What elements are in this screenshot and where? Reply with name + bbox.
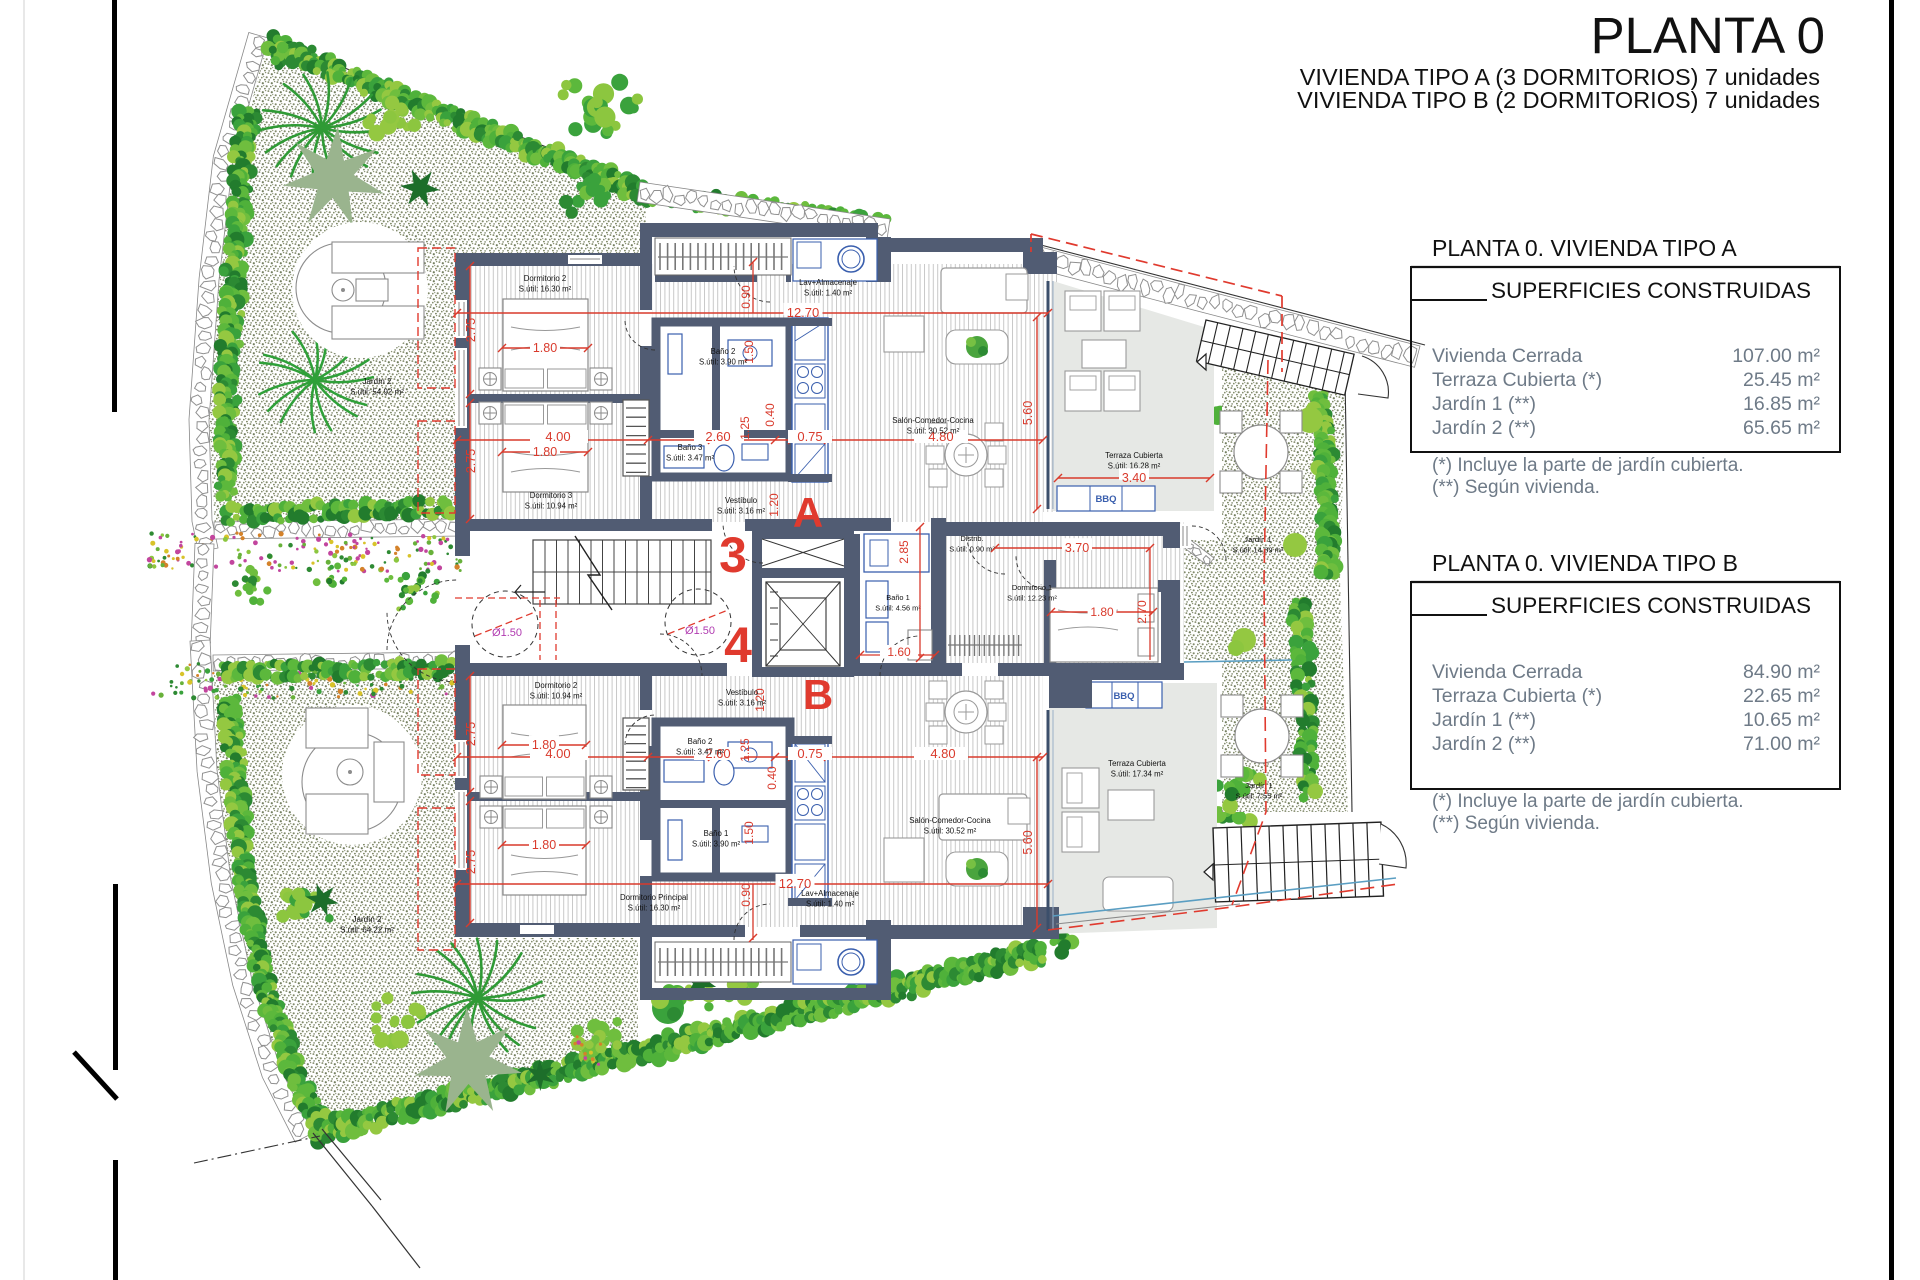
svg-text:Jardín 1 (**): Jardín 1 (**) — [1432, 393, 1536, 415]
svg-text:16.85 m²: 16.85 m² — [1743, 393, 1820, 415]
svg-text:4.00: 4.00 — [545, 429, 570, 444]
svg-text:3.70: 3.70 — [1065, 541, 1089, 555]
svg-text:Dormitorio 3: Dormitorio 3 — [530, 491, 572, 500]
svg-text:1.25: 1.25 — [738, 738, 752, 762]
svg-text:Vestíbulo: Vestíbulo — [726, 688, 759, 697]
svg-text:S.útil: 1.40 m²: S.útil: 1.40 m² — [806, 900, 855, 909]
svg-text:65.65 m²: 65.65 m² — [1743, 417, 1820, 439]
svg-text:4: 4 — [724, 617, 752, 673]
svg-text:0.40: 0.40 — [763, 403, 777, 427]
svg-text:S.útil: 3.90 m²: S.útil: 3.90 m² — [699, 358, 748, 367]
svg-text:S.útil: 7.55 m²: S.útil: 7.55 m² — [1236, 792, 1283, 801]
svg-text:1.20: 1.20 — [767, 493, 781, 517]
svg-text:1.80: 1.80 — [532, 738, 556, 752]
svg-text:Dormitorio Principal: Dormitorio Principal — [620, 893, 688, 902]
svg-text:S.útil: 64.22 m²: S.útil: 64.22 m² — [340, 926, 394, 935]
svg-text:Vestíbulo: Vestíbulo — [725, 496, 758, 505]
svg-text:Vivienda Cerrada: Vivienda Cerrada — [1432, 345, 1582, 367]
svg-text:S.útil: 10.94 m²: S.útil: 10.94 m² — [525, 502, 578, 511]
svg-text:Jardín 2: Jardín 2 — [363, 377, 392, 386]
svg-text:S.útil: 10.94 m²: S.útil: 10.94 m² — [530, 692, 583, 701]
svg-text:Salón-Comedor-Cocina: Salón-Comedor-Cocina — [909, 816, 991, 825]
svg-text:Baño 2: Baño 2 — [711, 347, 736, 356]
svg-text:1.80: 1.80 — [533, 445, 557, 459]
svg-text:1.80: 1.80 — [1090, 605, 1114, 619]
svg-text:0.40: 0.40 — [765, 766, 779, 790]
svg-text:2.75: 2.75 — [464, 449, 478, 473]
svg-text:3: 3 — [719, 527, 747, 583]
svg-text:Baño 1: Baño 1 — [886, 593, 909, 602]
svg-text:Dormitorio 2: Dormitorio 2 — [535, 681, 577, 690]
svg-text:Terraza Cubierta: Terraza Cubierta — [1105, 451, 1163, 460]
svg-text:A: A — [793, 489, 823, 536]
svg-text:(*) Incluye la parte de jardí: (*) Incluye la parte de jardín cubierta. — [1432, 791, 1744, 812]
svg-text:S.útil: 3.16 m²: S.útil: 3.16 m² — [718, 699, 767, 708]
svg-text:Baño 1: Baño 1 — [704, 829, 729, 838]
svg-text:S.útil: 30.52 m²: S.útil: 30.52 m² — [907, 427, 960, 436]
svg-text:1.25: 1.25 — [738, 416, 752, 440]
svg-text:SUPERFICIES CONSTRUIDAS: SUPERFICIES CONSTRUIDAS — [1491, 593, 1811, 618]
svg-text:Terraza Cubierta (*): Terraza Cubierta (*) — [1432, 369, 1602, 391]
svg-text:(*) Incluye la parte de jardí: (*) Incluye la parte de jardín cubierta. — [1432, 455, 1744, 476]
svg-text:1.80: 1.80 — [532, 838, 556, 852]
svg-text:10.65 m²: 10.65 m² — [1743, 709, 1820, 731]
svg-text:25.45 m²: 25.45 m² — [1743, 369, 1820, 391]
svg-text:S.útil: 17.34 m²: S.útil: 17.34 m² — [1111, 770, 1164, 779]
svg-text:Ø1.50: Ø1.50 — [492, 627, 522, 639]
svg-text:0.90: 0.90 — [739, 883, 753, 907]
svg-text:Lav+Almacenaje: Lav+Almacenaje — [801, 889, 859, 898]
svg-text:2.60: 2.60 — [705, 429, 730, 444]
svg-text:(**) Según vivienda.: (**) Según vivienda. — [1432, 477, 1600, 498]
svg-text:Jardín 2 (**): Jardín 2 (**) — [1432, 733, 1536, 755]
svg-text:S.útil: 3.90 m²: S.útil: 3.90 m² — [692, 840, 741, 849]
svg-text:12.70: 12.70 — [787, 305, 820, 320]
svg-text:S.útil: 4.56 m²: S.útil: 4.56 m² — [875, 604, 921, 613]
svg-text:2.70: 2.70 — [1135, 600, 1149, 624]
svg-text:SUPERFICIES CONSTRUIDAS: SUPERFICIES CONSTRUIDAS — [1491, 278, 1811, 303]
svg-text:1.60: 1.60 — [887, 645, 911, 659]
svg-text:Salón-Comedor-Cocina: Salón-Comedor-Cocina — [892, 416, 974, 425]
svg-text:PLANTA 0: PLANTA 0 — [1591, 7, 1825, 64]
svg-text:Jardín 2: Jardín 2 — [353, 915, 382, 924]
svg-text:S.útil: 54.92 m²: S.útil: 54.92 m² — [350, 388, 404, 397]
svg-text:S.útil: 3.47 m²: S.útil: 3.47 m² — [676, 748, 725, 757]
svg-text:1.80: 1.80 — [533, 341, 557, 355]
svg-text:0.75: 0.75 — [797, 746, 822, 761]
svg-text:107.00 m²: 107.00 m² — [1732, 345, 1820, 367]
svg-text:PLANTA 0. VIVIENDA TIPO B: PLANTA 0. VIVIENDA TIPO B — [1432, 550, 1738, 576]
svg-text:(**) Según vivienda.: (**) Según vivienda. — [1432, 813, 1600, 834]
svg-text:1.50: 1.50 — [742, 821, 756, 845]
svg-text:BBQ: BBQ — [1113, 691, 1134, 702]
svg-text:Jardín 1 (**): Jardín 1 (**) — [1432, 709, 1536, 731]
svg-text:84.90 m²: 84.90 m² — [1743, 661, 1820, 683]
svg-text:S.útil: 14.89 m²: S.útil: 14.89 m² — [1232, 546, 1284, 555]
svg-text:Lav+Almacenaje: Lav+Almacenaje — [799, 278, 857, 287]
svg-text:5.60: 5.60 — [1021, 830, 1035, 854]
svg-text:Baño 2: Baño 2 — [688, 737, 713, 746]
svg-text:S.útil: 1.40 m²: S.útil: 1.40 m² — [804, 289, 853, 298]
svg-text:Jardín 1: Jardín 1 — [1244, 535, 1271, 544]
svg-text:Dormitorio 1: Dormitorio 1 — [1012, 583, 1052, 592]
svg-text:Distrib.: Distrib. — [961, 534, 984, 543]
svg-text:3.40: 3.40 — [1122, 471, 1146, 485]
svg-text:0.75: 0.75 — [797, 429, 822, 444]
svg-text:BBQ: BBQ — [1095, 494, 1116, 505]
svg-text:Jardín 2 (**): Jardín 2 (**) — [1432, 417, 1536, 439]
svg-text:Jardín 1: Jardín 1 — [1245, 781, 1272, 790]
svg-text:2.75: 2.75 — [464, 722, 478, 746]
svg-text:4.80: 4.80 — [930, 746, 955, 761]
svg-text:S.útil: 16.30 m²: S.útil: 16.30 m² — [519, 285, 572, 294]
svg-text:2.75: 2.75 — [464, 318, 478, 342]
svg-text:0.90: 0.90 — [739, 285, 753, 309]
svg-text:5.60: 5.60 — [1021, 401, 1035, 425]
svg-text:S.útil: 30.52 m²: S.útil: 30.52 m² — [924, 827, 977, 836]
svg-text:Vivienda Cerrada: Vivienda Cerrada — [1432, 661, 1582, 683]
svg-text:Dormitorio 2: Dormitorio 2 — [524, 274, 566, 283]
svg-text:2.85: 2.85 — [897, 540, 911, 564]
svg-text:71.00 m²: 71.00 m² — [1743, 733, 1820, 755]
svg-text:Baño 3: Baño 3 — [678, 443, 703, 452]
svg-text:Terraza Cubierta (*): Terraza Cubierta (*) — [1432, 685, 1602, 707]
svg-text:S.útil: 12.23 m²: S.útil: 12.23 m² — [1007, 594, 1057, 603]
svg-text:PLANTA 0. VIVIENDA TIPO A: PLANTA 0. VIVIENDA TIPO A — [1432, 235, 1737, 261]
svg-text:S.útil: 3.16 m²: S.útil: 3.16 m² — [717, 507, 766, 516]
svg-text:Ø1.50: Ø1.50 — [685, 625, 715, 637]
svg-text:VIVIENDA TIPO B (2 DORMITORIOS: VIVIENDA TIPO B (2 DORMITORIOS) 7 unidad… — [1297, 87, 1820, 113]
svg-text:Terraza Cubierta: Terraza Cubierta — [1108, 759, 1166, 768]
svg-text:S.útil: 0.90 m²: S.útil: 0.90 m² — [949, 545, 995, 554]
svg-text:2.75: 2.75 — [464, 850, 478, 874]
svg-text:S.útil: 16.30 m²: S.útil: 16.30 m² — [628, 904, 681, 913]
svg-text:S.útil: 3.47 m²: S.útil: 3.47 m² — [666, 454, 715, 463]
svg-text:22.65 m²: 22.65 m² — [1743, 685, 1820, 707]
svg-text:B: B — [803, 671, 833, 718]
